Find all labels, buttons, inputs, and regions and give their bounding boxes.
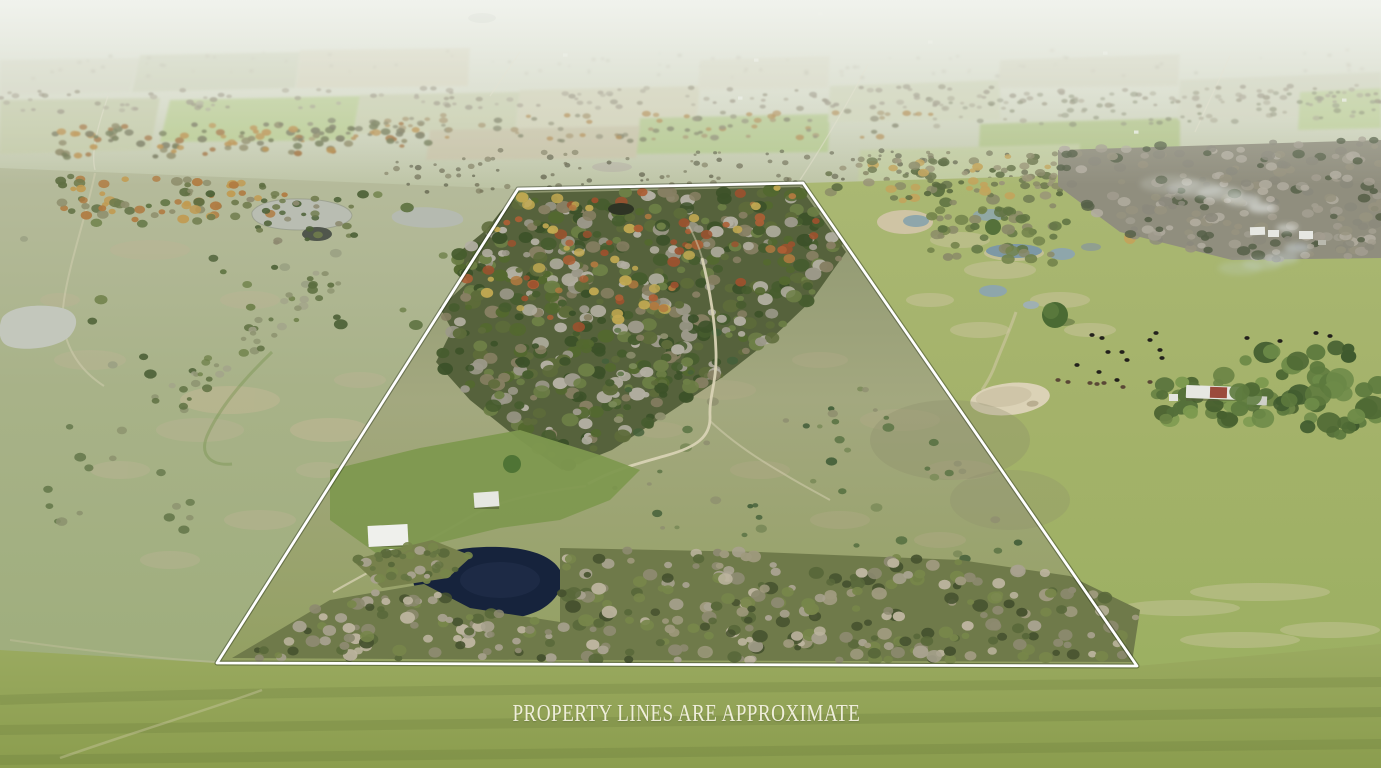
tree xyxy=(88,318,98,325)
tree xyxy=(1284,236,1292,242)
tree xyxy=(597,317,606,324)
tree xyxy=(1237,246,1250,255)
tree xyxy=(962,621,974,631)
tree xyxy=(722,222,729,228)
tree xyxy=(701,218,709,225)
tree xyxy=(271,265,278,270)
tree xyxy=(1144,217,1152,222)
tree xyxy=(1154,206,1167,215)
tree xyxy=(751,202,761,210)
tree xyxy=(589,287,599,295)
shed-roof xyxy=(473,491,499,508)
tree xyxy=(423,635,433,643)
tree xyxy=(911,555,923,564)
tree xyxy=(980,612,988,618)
tree xyxy=(485,400,501,412)
tree xyxy=(1343,240,1355,248)
tree xyxy=(688,314,699,323)
tree xyxy=(651,398,663,408)
tree xyxy=(617,372,624,377)
tree xyxy=(242,281,252,288)
cow xyxy=(1153,331,1158,335)
tree xyxy=(293,201,300,206)
tree xyxy=(652,510,662,517)
tree xyxy=(400,612,415,624)
tree xyxy=(835,436,845,443)
tree xyxy=(455,641,465,649)
tree xyxy=(665,187,677,197)
tree xyxy=(638,300,650,309)
tree xyxy=(657,470,662,474)
scrub-patch xyxy=(870,400,1030,480)
tree xyxy=(1253,235,1266,244)
tree xyxy=(586,241,601,252)
tree xyxy=(279,263,290,271)
tree xyxy=(718,204,727,211)
tree xyxy=(809,567,824,579)
tree xyxy=(57,199,68,207)
tree xyxy=(434,561,443,568)
tree xyxy=(835,657,843,664)
tree xyxy=(159,209,166,214)
tree xyxy=(1327,341,1344,356)
tree xyxy=(680,278,694,289)
tree xyxy=(500,288,514,299)
tree xyxy=(659,304,669,312)
tree xyxy=(313,271,320,276)
tree xyxy=(660,333,668,339)
tree xyxy=(826,457,837,465)
cow xyxy=(1244,336,1249,340)
tree xyxy=(660,526,665,530)
tree xyxy=(756,525,767,533)
tree xyxy=(532,291,541,298)
tree xyxy=(812,218,820,224)
tree xyxy=(803,282,813,290)
tree xyxy=(492,269,507,281)
tree xyxy=(1166,225,1173,230)
tree xyxy=(179,403,188,410)
tree xyxy=(1014,540,1023,546)
tree xyxy=(731,241,739,247)
tree xyxy=(990,516,1000,523)
cow xyxy=(1055,378,1060,382)
tree xyxy=(704,632,714,640)
tree xyxy=(178,526,189,534)
tree xyxy=(564,246,570,251)
barn-red-roof-section xyxy=(1210,387,1227,399)
tree xyxy=(1229,240,1241,249)
tree xyxy=(832,419,840,425)
tree xyxy=(445,617,453,623)
tree xyxy=(752,503,758,507)
tree xyxy=(606,240,613,245)
tree xyxy=(134,206,145,214)
cow xyxy=(1120,385,1125,389)
tree xyxy=(271,191,280,197)
tree xyxy=(453,328,467,339)
atmospheric-haze xyxy=(0,0,1381,185)
tree xyxy=(835,256,842,262)
tree xyxy=(343,623,356,633)
tree xyxy=(463,552,473,560)
tree xyxy=(160,199,170,206)
tree xyxy=(533,385,550,398)
tree xyxy=(1081,200,1093,209)
tree xyxy=(545,629,552,635)
tree xyxy=(737,607,749,617)
tree xyxy=(1231,401,1249,416)
tree xyxy=(563,255,576,265)
tree xyxy=(674,247,684,255)
tree xyxy=(682,426,693,434)
tree xyxy=(277,323,287,331)
tree xyxy=(703,242,710,248)
tree xyxy=(1175,194,1183,200)
tree xyxy=(555,287,563,293)
tree xyxy=(460,385,470,392)
tree xyxy=(137,220,148,228)
tree xyxy=(347,600,357,608)
tree xyxy=(220,269,227,274)
tree xyxy=(926,560,940,571)
tree xyxy=(574,248,585,257)
tree xyxy=(735,278,746,287)
tree xyxy=(360,631,374,642)
tree xyxy=(1025,254,1037,263)
tree xyxy=(650,246,660,254)
tree xyxy=(701,230,713,239)
tree xyxy=(533,408,546,418)
tree xyxy=(893,573,907,584)
tree xyxy=(455,348,464,355)
tree xyxy=(622,547,632,555)
tree xyxy=(790,274,801,282)
tree xyxy=(1330,214,1338,219)
tree xyxy=(323,625,336,636)
tree xyxy=(698,321,714,333)
tree xyxy=(1087,632,1095,638)
tree xyxy=(708,618,717,625)
tree xyxy=(625,649,634,656)
tree xyxy=(76,185,86,192)
tree xyxy=(711,329,721,337)
tree xyxy=(681,357,693,366)
tree xyxy=(400,308,407,313)
tree xyxy=(733,257,742,264)
cow xyxy=(1313,331,1318,335)
tree xyxy=(335,613,347,623)
tree xyxy=(884,656,893,663)
tree xyxy=(436,348,449,358)
tree xyxy=(766,226,781,238)
tree xyxy=(913,646,929,659)
tree xyxy=(1339,226,1353,236)
tree xyxy=(478,327,486,334)
tree xyxy=(550,258,564,269)
pond-reflection xyxy=(460,562,540,598)
tree xyxy=(84,464,93,471)
tree xyxy=(1266,196,1275,202)
tree xyxy=(1049,221,1062,231)
tree xyxy=(825,590,837,600)
tree xyxy=(670,282,678,289)
tree xyxy=(914,570,925,579)
tree xyxy=(438,548,450,557)
tree xyxy=(625,387,632,392)
tree xyxy=(617,350,628,358)
tree xyxy=(478,653,487,660)
tree xyxy=(939,580,951,590)
tree xyxy=(785,217,798,227)
tree xyxy=(839,632,852,643)
tree xyxy=(401,547,408,553)
tree xyxy=(1125,230,1136,238)
tree xyxy=(310,210,319,216)
tree xyxy=(600,250,608,257)
tree xyxy=(633,231,641,237)
tree xyxy=(514,327,523,334)
tree xyxy=(169,209,175,214)
tree xyxy=(567,587,582,599)
tree xyxy=(700,623,710,631)
tree xyxy=(1365,244,1375,251)
tree xyxy=(354,647,363,654)
tree xyxy=(490,341,498,347)
tree xyxy=(515,216,523,222)
tree xyxy=(623,404,631,410)
tree xyxy=(616,241,629,251)
tree xyxy=(755,337,767,346)
tree xyxy=(542,365,558,377)
tree xyxy=(1310,361,1326,374)
tree xyxy=(357,561,363,566)
tree xyxy=(169,383,176,388)
tree xyxy=(657,223,666,230)
tree xyxy=(633,428,644,436)
tree xyxy=(494,610,505,619)
tree xyxy=(66,424,73,430)
tree xyxy=(451,248,467,260)
tree xyxy=(434,592,442,598)
cow xyxy=(1119,350,1124,354)
tree xyxy=(929,439,939,446)
tree xyxy=(1336,246,1346,253)
tree xyxy=(637,188,648,196)
tree xyxy=(1012,623,1024,633)
tree xyxy=(640,367,653,377)
tree xyxy=(641,417,654,427)
tree xyxy=(440,569,452,578)
tree xyxy=(189,205,201,214)
tree xyxy=(579,305,589,313)
tree xyxy=(1187,234,1195,240)
tree xyxy=(674,526,679,530)
tree xyxy=(671,344,684,354)
tree xyxy=(521,296,528,302)
small-shed-roof xyxy=(1169,394,1178,401)
tree xyxy=(519,232,533,243)
tree xyxy=(988,637,998,645)
tree xyxy=(675,301,685,309)
tree xyxy=(713,265,723,273)
tree xyxy=(1155,227,1163,233)
tree xyxy=(966,186,973,191)
tree xyxy=(883,607,893,615)
tree xyxy=(516,267,523,272)
tree xyxy=(786,290,802,302)
tree xyxy=(551,194,563,204)
tree xyxy=(533,263,545,273)
tree xyxy=(930,474,940,481)
tree xyxy=(43,486,53,493)
tree xyxy=(186,515,194,521)
tree xyxy=(985,618,1000,630)
tree xyxy=(614,430,631,443)
tree xyxy=(717,315,727,323)
tree xyxy=(614,328,621,333)
tree xyxy=(562,563,571,570)
tree xyxy=(301,213,306,217)
cow xyxy=(1087,381,1092,385)
tree xyxy=(873,408,878,412)
tree xyxy=(653,254,669,266)
tree xyxy=(495,321,511,333)
tree xyxy=(473,359,488,370)
tree xyxy=(482,249,493,257)
tree xyxy=(938,225,948,233)
tree xyxy=(327,288,335,294)
tree xyxy=(667,257,680,267)
tree xyxy=(79,197,88,203)
cow xyxy=(1114,378,1119,382)
tree xyxy=(573,378,586,388)
tree xyxy=(926,212,937,220)
tree xyxy=(465,365,474,372)
tree xyxy=(913,634,920,640)
tree xyxy=(605,363,616,372)
tree xyxy=(117,427,127,435)
tree xyxy=(1107,192,1119,201)
tree xyxy=(952,253,962,260)
tree xyxy=(1191,210,1200,217)
tree xyxy=(974,188,980,192)
tree xyxy=(927,650,942,662)
tree xyxy=(727,651,741,662)
tree xyxy=(591,429,602,437)
tree xyxy=(215,371,224,378)
tree xyxy=(246,197,254,203)
tree xyxy=(538,205,550,214)
tree xyxy=(401,574,409,581)
tree xyxy=(1056,605,1067,614)
tree xyxy=(545,639,555,647)
tree xyxy=(951,242,960,249)
tree xyxy=(741,286,752,294)
tree xyxy=(569,205,577,211)
tree xyxy=(1270,239,1281,247)
tree xyxy=(511,276,523,286)
tree xyxy=(598,330,615,343)
tree xyxy=(972,599,988,612)
tree xyxy=(997,633,1007,641)
tree xyxy=(399,554,406,560)
tree xyxy=(1058,629,1072,640)
tree xyxy=(634,593,646,602)
tree xyxy=(565,240,573,247)
tree xyxy=(1183,405,1198,417)
tree xyxy=(320,636,331,645)
tree xyxy=(214,363,219,367)
tree xyxy=(838,488,846,494)
tree xyxy=(703,441,710,446)
tree xyxy=(819,261,833,272)
tree xyxy=(1311,203,1318,208)
tree xyxy=(987,591,1002,603)
tree xyxy=(642,392,649,398)
tree xyxy=(945,655,957,664)
tree xyxy=(738,638,747,646)
tree xyxy=(877,628,892,640)
equipment-shed xyxy=(473,491,499,509)
tree xyxy=(139,354,148,361)
tree xyxy=(522,200,535,210)
tree xyxy=(544,302,560,314)
tree xyxy=(1287,352,1309,371)
tree xyxy=(972,577,983,585)
tree xyxy=(466,614,474,620)
tree xyxy=(591,261,599,267)
tree xyxy=(766,321,775,328)
tree xyxy=(967,599,974,605)
tree xyxy=(689,192,701,201)
tree xyxy=(743,242,754,251)
tree xyxy=(131,217,138,222)
tree xyxy=(962,633,970,639)
tree xyxy=(992,606,1003,615)
tree xyxy=(1017,652,1028,661)
tree xyxy=(947,189,954,194)
tree xyxy=(677,267,685,274)
tree xyxy=(1248,244,1257,250)
tree xyxy=(1116,212,1126,219)
tree xyxy=(319,613,328,620)
tree xyxy=(828,410,838,417)
tree xyxy=(597,646,608,655)
tree xyxy=(850,649,863,660)
tree xyxy=(414,566,425,575)
tree xyxy=(683,251,695,260)
tree xyxy=(573,322,585,332)
tree xyxy=(1326,368,1354,392)
tree xyxy=(151,212,159,218)
tree xyxy=(899,637,911,647)
tree xyxy=(98,205,106,211)
tree xyxy=(545,653,556,662)
tree xyxy=(627,558,635,564)
cow xyxy=(1157,348,1162,352)
tree xyxy=(334,319,348,329)
tree xyxy=(300,296,309,303)
tree xyxy=(612,216,626,227)
tree xyxy=(1047,252,1055,258)
tree xyxy=(256,228,263,233)
tree xyxy=(1281,393,1298,407)
tree xyxy=(191,380,201,387)
tree xyxy=(522,370,533,379)
tree xyxy=(1252,409,1275,428)
cow xyxy=(1147,338,1152,342)
